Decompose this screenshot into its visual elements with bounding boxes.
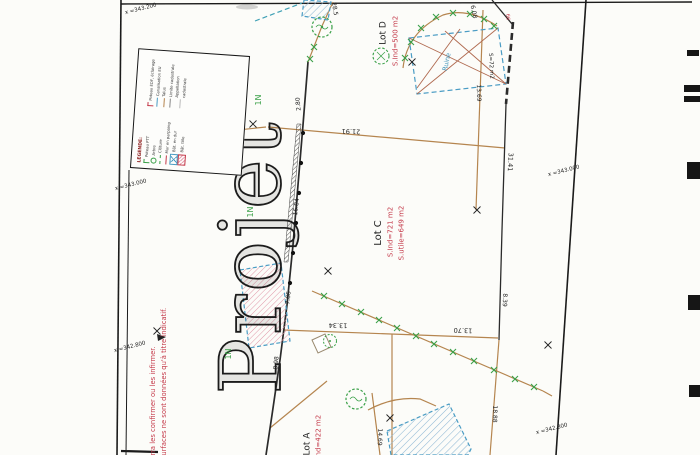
lot-c-name: Lot C (374, 220, 384, 246)
measurement: 8.98 (273, 356, 280, 370)
hatched-box-icon (177, 154, 186, 166)
legend-item-label: Appellation cadastrale (174, 55, 190, 98)
lot-c-area-utile: S.utile=649 m2 (399, 206, 406, 261)
measurement: 13.70 (454, 326, 473, 333)
legend-column-2: Poteau EDF, éclairage Canalisation EU Ta… (147, 53, 193, 109)
lot-d-name: Lot D (380, 21, 389, 45)
zone-label: 1N (255, 94, 263, 105)
lot-c-area-ind: S.Ind=721 m2 (388, 207, 395, 257)
tree-icon (150, 157, 156, 163)
disclaimer-line: ourra les confirmer ou les infirmer. (148, 292, 159, 455)
measurement: 14.69 (376, 428, 383, 445)
scanned-survey-plan: Projet Lot D S.Ind=500 m2 Lot C S.Ind=72… (0, 0, 700, 455)
measurement: 28.5 (330, 2, 338, 16)
red-pole-icon (148, 103, 154, 107)
red-annotation: 66 (504, 14, 509, 21)
green-pole-icon (144, 159, 150, 163)
red-line-icon (166, 155, 168, 164)
disclaimer-line: t surfaces ne sont données qu'à titre in… (159, 292, 170, 455)
plan-linework (0, 0, 700, 455)
lot-a-area: S.Ind=422 m2 (316, 415, 323, 455)
measurement: 8.39 (501, 293, 507, 307)
measurement: 18.88 (491, 405, 498, 422)
zone-label: 1N (225, 348, 233, 359)
lot-d-area: S.Ind=500 m2 (393, 16, 400, 66)
measurement: 21.91 (342, 127, 361, 134)
blue-line-icon (157, 98, 159, 107)
measurement: 2.80 (295, 97, 302, 111)
thin-line-icon (179, 100, 181, 109)
building-top (302, 0, 331, 20)
scan-marks (236, 5, 700, 398)
legend-item-label: Bât. tôle (179, 136, 187, 152)
legend-box: LEGENDE: Poteau PTT Arbre Clôture Mur en… (130, 48, 250, 176)
measurement: 13.34 (329, 322, 348, 329)
tan-line-icon (163, 99, 165, 108)
shed (312, 334, 331, 353)
measurement: 31.41 (506, 153, 513, 172)
ruin-area: S=72 m2 (487, 53, 494, 79)
zone-label: 1N (247, 206, 255, 217)
gray-line-icon (169, 99, 171, 108)
utility-line (255, 3, 302, 21)
legend-content: LEGENDE: Poteau PTT Arbre Clôture Mur en… (135, 53, 245, 172)
legend-column-1: Poteau PTT Arbre Clôture Mur en parpaing… (143, 109, 189, 165)
disclaimer-note: ourra les confirmer ou les infirmer. t s… (148, 292, 170, 455)
building-bottom-right (387, 404, 471, 455)
lot-a-name: Lot A (304, 433, 313, 455)
measurement: 13.69 (475, 84, 481, 101)
green-dashed-line-icon (159, 155, 161, 164)
